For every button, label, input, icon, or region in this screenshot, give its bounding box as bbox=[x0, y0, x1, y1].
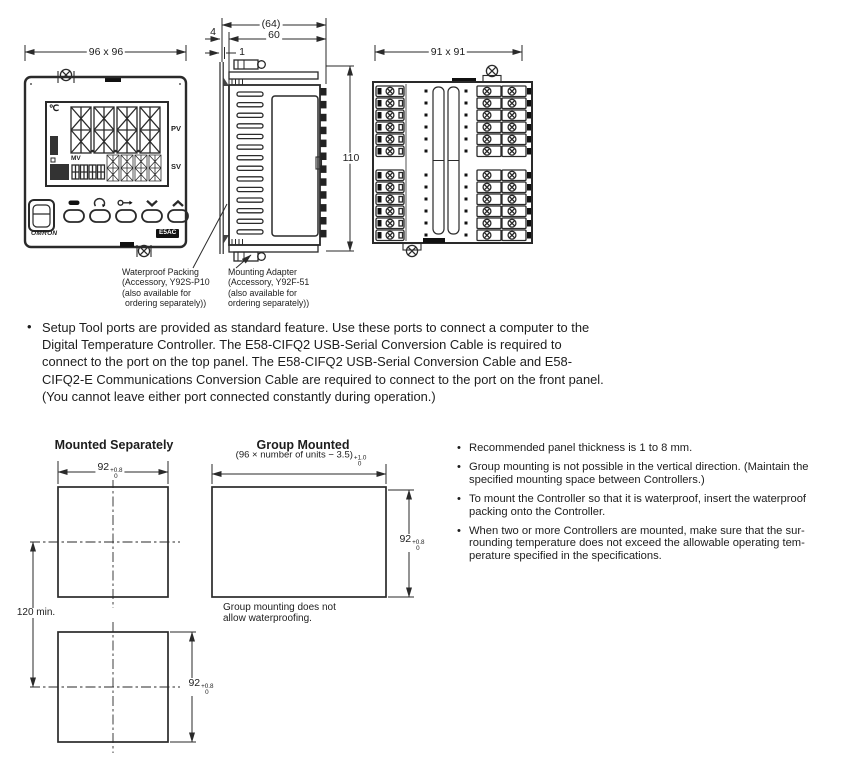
group-mounting-note: Group mounting does not allow waterproof… bbox=[223, 602, 336, 625]
waterproof-leader-line bbox=[193, 204, 227, 268]
rear-view-drawing bbox=[373, 45, 532, 257]
front-key-buttons bbox=[64, 210, 188, 222]
side-view-drawing bbox=[193, 18, 354, 268]
up-key-icon bbox=[173, 201, 183, 206]
side-dim-packing-label: 1 bbox=[237, 47, 247, 58]
front-view-drawing bbox=[25, 45, 188, 257]
cutout-height-dim: 92+0.80 bbox=[186, 678, 215, 696]
group-width-formula: (96 × number of units − 3.5)+1.00 bbox=[234, 451, 369, 468]
setup-note-paragraph: Setup Tool ports are provided as standar… bbox=[42, 319, 604, 405]
vertical-spacing-dim: 120 min. bbox=[15, 608, 57, 618]
mounted-separately-diagram bbox=[30, 461, 196, 753]
datasheet-page: 96 x 96 (64) 60 4 1 110 91 x 91 ℃ PV SV … bbox=[0, 0, 854, 772]
brand-logo: OMRON bbox=[31, 231, 57, 238]
waterproof-packing-callout: Waterproof Packing (Accessory, Y92S-P10 … bbox=[122, 267, 210, 308]
list-item: Group mounting is not possible in the ve… bbox=[456, 461, 854, 487]
mode-key-icon bbox=[94, 199, 105, 208]
down-key-icon bbox=[147, 201, 157, 206]
list-item: When two or more Controllers are mounted… bbox=[456, 525, 854, 564]
rear-dim-label: 91 x 91 bbox=[429, 47, 467, 58]
front-dim-label: 96 x 96 bbox=[87, 47, 125, 58]
list-item: To mount the Controller so that it is wa… bbox=[456, 493, 854, 519]
sv-label: SV bbox=[171, 163, 181, 171]
group-height-dim: 92+0.80 bbox=[397, 534, 426, 552]
pv-label: PV bbox=[171, 125, 181, 133]
side-dim-bezel-label: 4 bbox=[208, 27, 218, 38]
side-dim-depth-label: 60 bbox=[266, 30, 282, 41]
mounting-notes-list: Recommended panel thickness is 1 to 8 mm… bbox=[456, 442, 854, 569]
mv-label: MV bbox=[71, 156, 81, 163]
group-mounted-diagram bbox=[212, 464, 414, 597]
level-key-icon bbox=[69, 201, 80, 206]
list-item: Recommended panel thickness is 1 to 8 mm… bbox=[456, 442, 854, 455]
mounting-adapter-callout: Mounting Adapter (Accessory, Y92F-51 (al… bbox=[228, 267, 309, 308]
model-label: E5AC bbox=[156, 229, 179, 238]
side-dim-overall-label: (64) bbox=[260, 19, 283, 30]
shift-key-icon bbox=[118, 200, 132, 205]
side-dim-height-label: 110 bbox=[341, 153, 362, 164]
degc-indicator: ℃ bbox=[49, 104, 59, 113]
front-setup-port bbox=[29, 200, 54, 231]
cutout-width-dim: 92+0.80 bbox=[95, 462, 124, 480]
mounted-separately-title: Mounted Separately bbox=[55, 438, 174, 452]
setup-note-bullet: • bbox=[27, 319, 32, 334]
